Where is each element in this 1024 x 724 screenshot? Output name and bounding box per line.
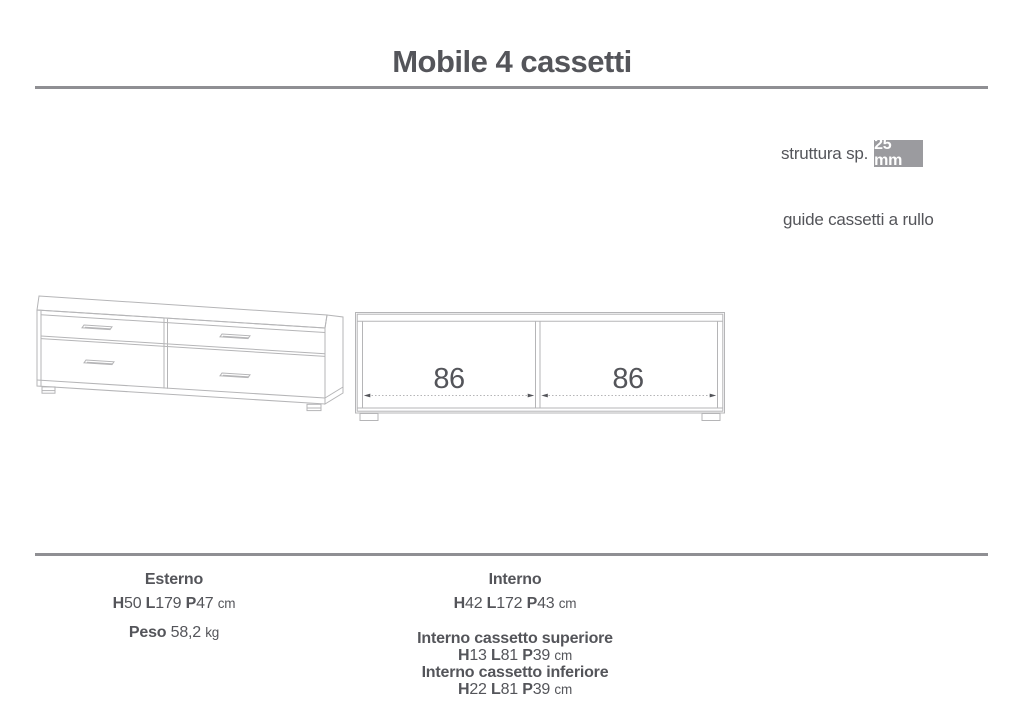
right-compartment-width-label: 86	[612, 363, 643, 395]
drawer-handle-icon	[82, 325, 250, 378]
internal-specs: Interno H42 L172 P43 cm Interno cassetto…	[395, 568, 635, 698]
drawer-guides-note: guide cassetti a rullo	[783, 210, 934, 230]
lower-drawer-dimensions: H22 L81 P39 cm	[395, 681, 635, 698]
external-specs: Esterno H50 L179 P47 cm Peso 58,2 kg	[58, 568, 290, 645]
cabinet-feet-3d	[42, 387, 321, 411]
drawer-specs-block: Interno cassetto superiore H13 L81 P39 c…	[395, 630, 635, 698]
page-title: Mobile 4 cassetti	[0, 44, 1024, 80]
weight-value: 58,2	[171, 624, 201, 641]
esterno-dimensions: H50 L179 P47 cm	[58, 592, 290, 616]
weight-unit: kg	[205, 625, 219, 640]
esterno-heading: Esterno	[58, 568, 290, 592]
upper-drawer-heading: Interno cassetto superiore	[395, 630, 635, 647]
spec-sheet-page: Mobile 4 cassetti struttura sp. 25 mm gu…	[0, 0, 1024, 724]
structure-thickness-note: struttura sp. 25 mm	[781, 140, 923, 167]
thickness-badge: 25 mm	[874, 140, 923, 167]
left-compartment-width-label: 86	[433, 363, 464, 395]
cabinet-3d-drawing	[30, 294, 348, 426]
upper-drawer-dimensions: H13 L81 P39 cm	[395, 647, 635, 664]
thickness-value: 25 mm	[874, 137, 923, 169]
interno-heading: Interno	[395, 568, 635, 592]
specs-divider-line	[35, 553, 988, 556]
lower-drawer-heading: Interno cassetto inferiore	[395, 664, 635, 681]
weight-line: Peso 58,2 kg	[58, 621, 290, 645]
cabinet-front-drawing: 86 86	[355, 312, 725, 426]
title-divider-line	[35, 86, 988, 89]
weight-label: Peso	[129, 624, 166, 641]
interno-dimensions: H42 L172 P43 cm	[395, 592, 635, 616]
cabinet-body-3d	[37, 296, 343, 404]
cabinet-feet-front	[360, 414, 720, 421]
cabinet-body-front	[356, 313, 725, 414]
structure-thickness-label: struttura sp.	[781, 144, 868, 164]
